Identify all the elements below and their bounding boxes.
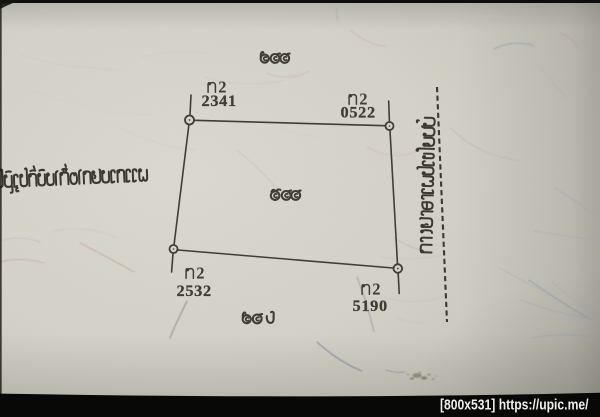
svg-text:5190: 5190 [353,296,388,315]
svg-text:2341: 2341 [202,91,237,110]
svg-text:2532: 2532 [177,281,212,300]
svg-text:0522: 0522 [341,103,376,122]
svg-text:2: 2 [196,263,204,282]
svg-text:[800x531] https://upic.me/: [800x531] https://upic.me/ [440,396,589,412]
